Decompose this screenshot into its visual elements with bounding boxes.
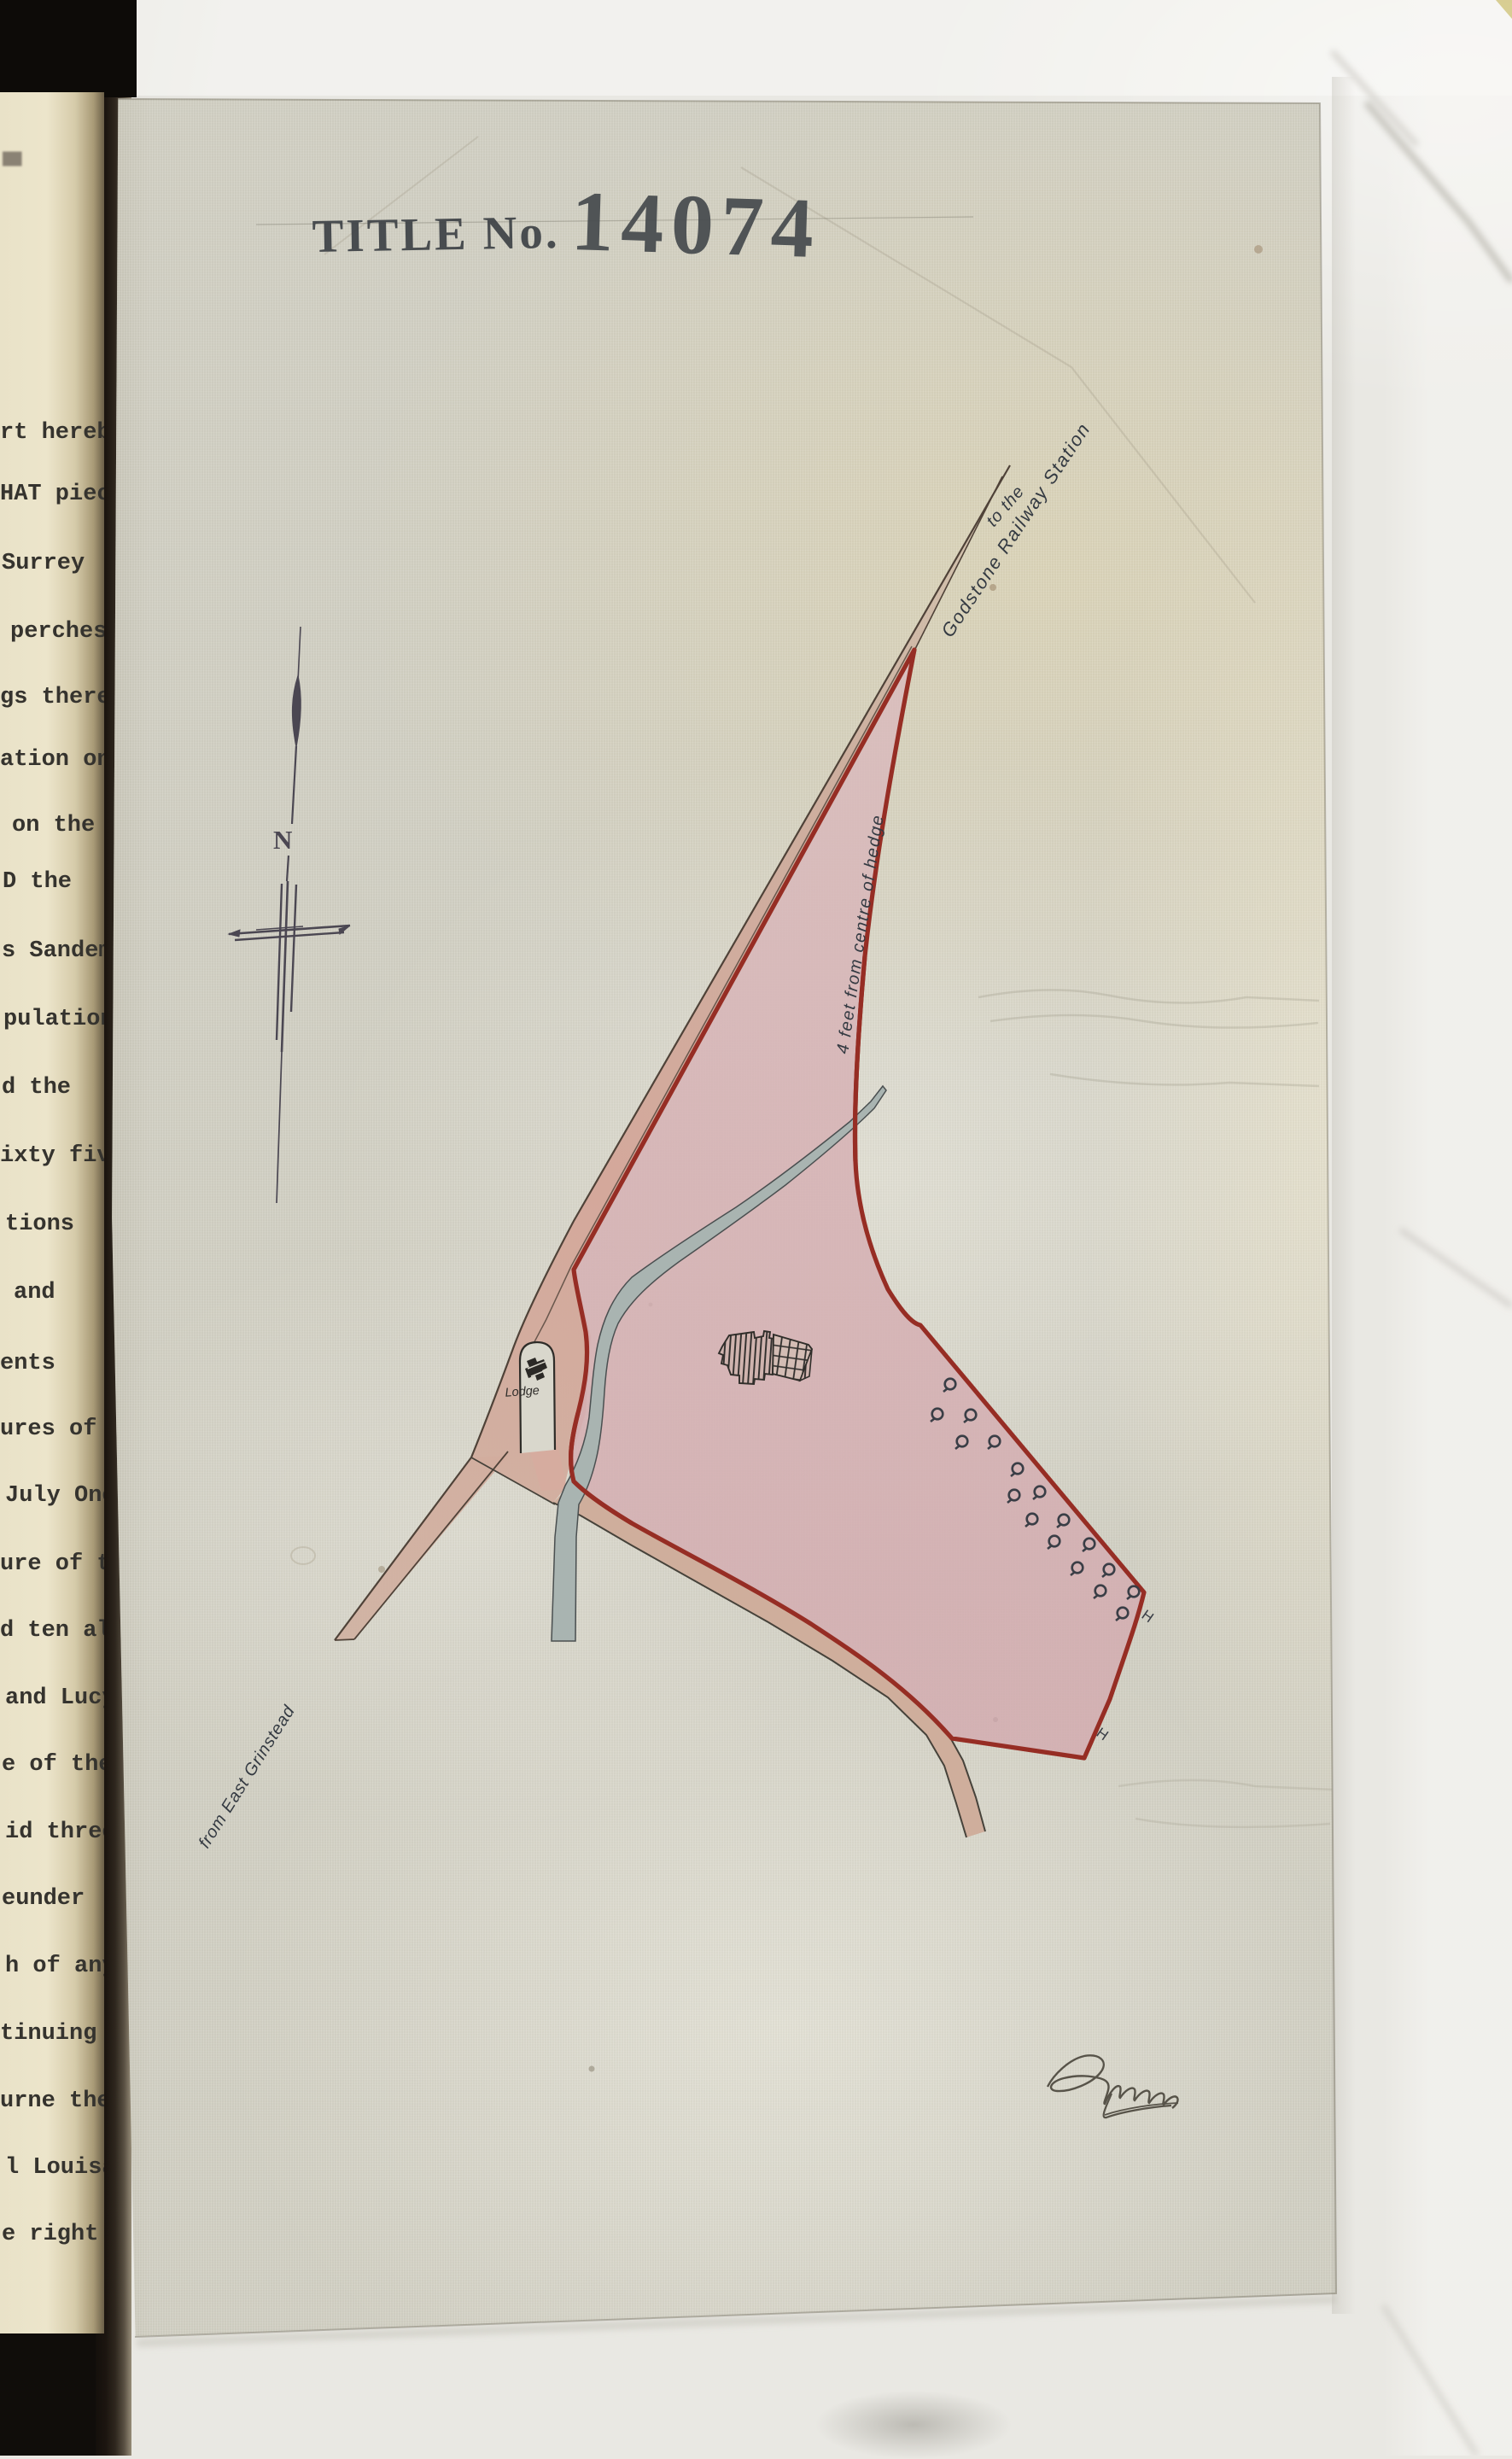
svg-text:TITLE No.: TITLE No.: [312, 206, 560, 262]
svg-text:Godstone Railway Station: Godstone Railway Station: [937, 418, 1095, 641]
svg-text:from East Grinstead: from East Grinstead: [196, 1703, 300, 1852]
svg-text:14074: 14074: [569, 173, 822, 276]
svg-text:Lodge: Lodge: [505, 1384, 540, 1400]
svg-text:N: N: [273, 825, 292, 855]
